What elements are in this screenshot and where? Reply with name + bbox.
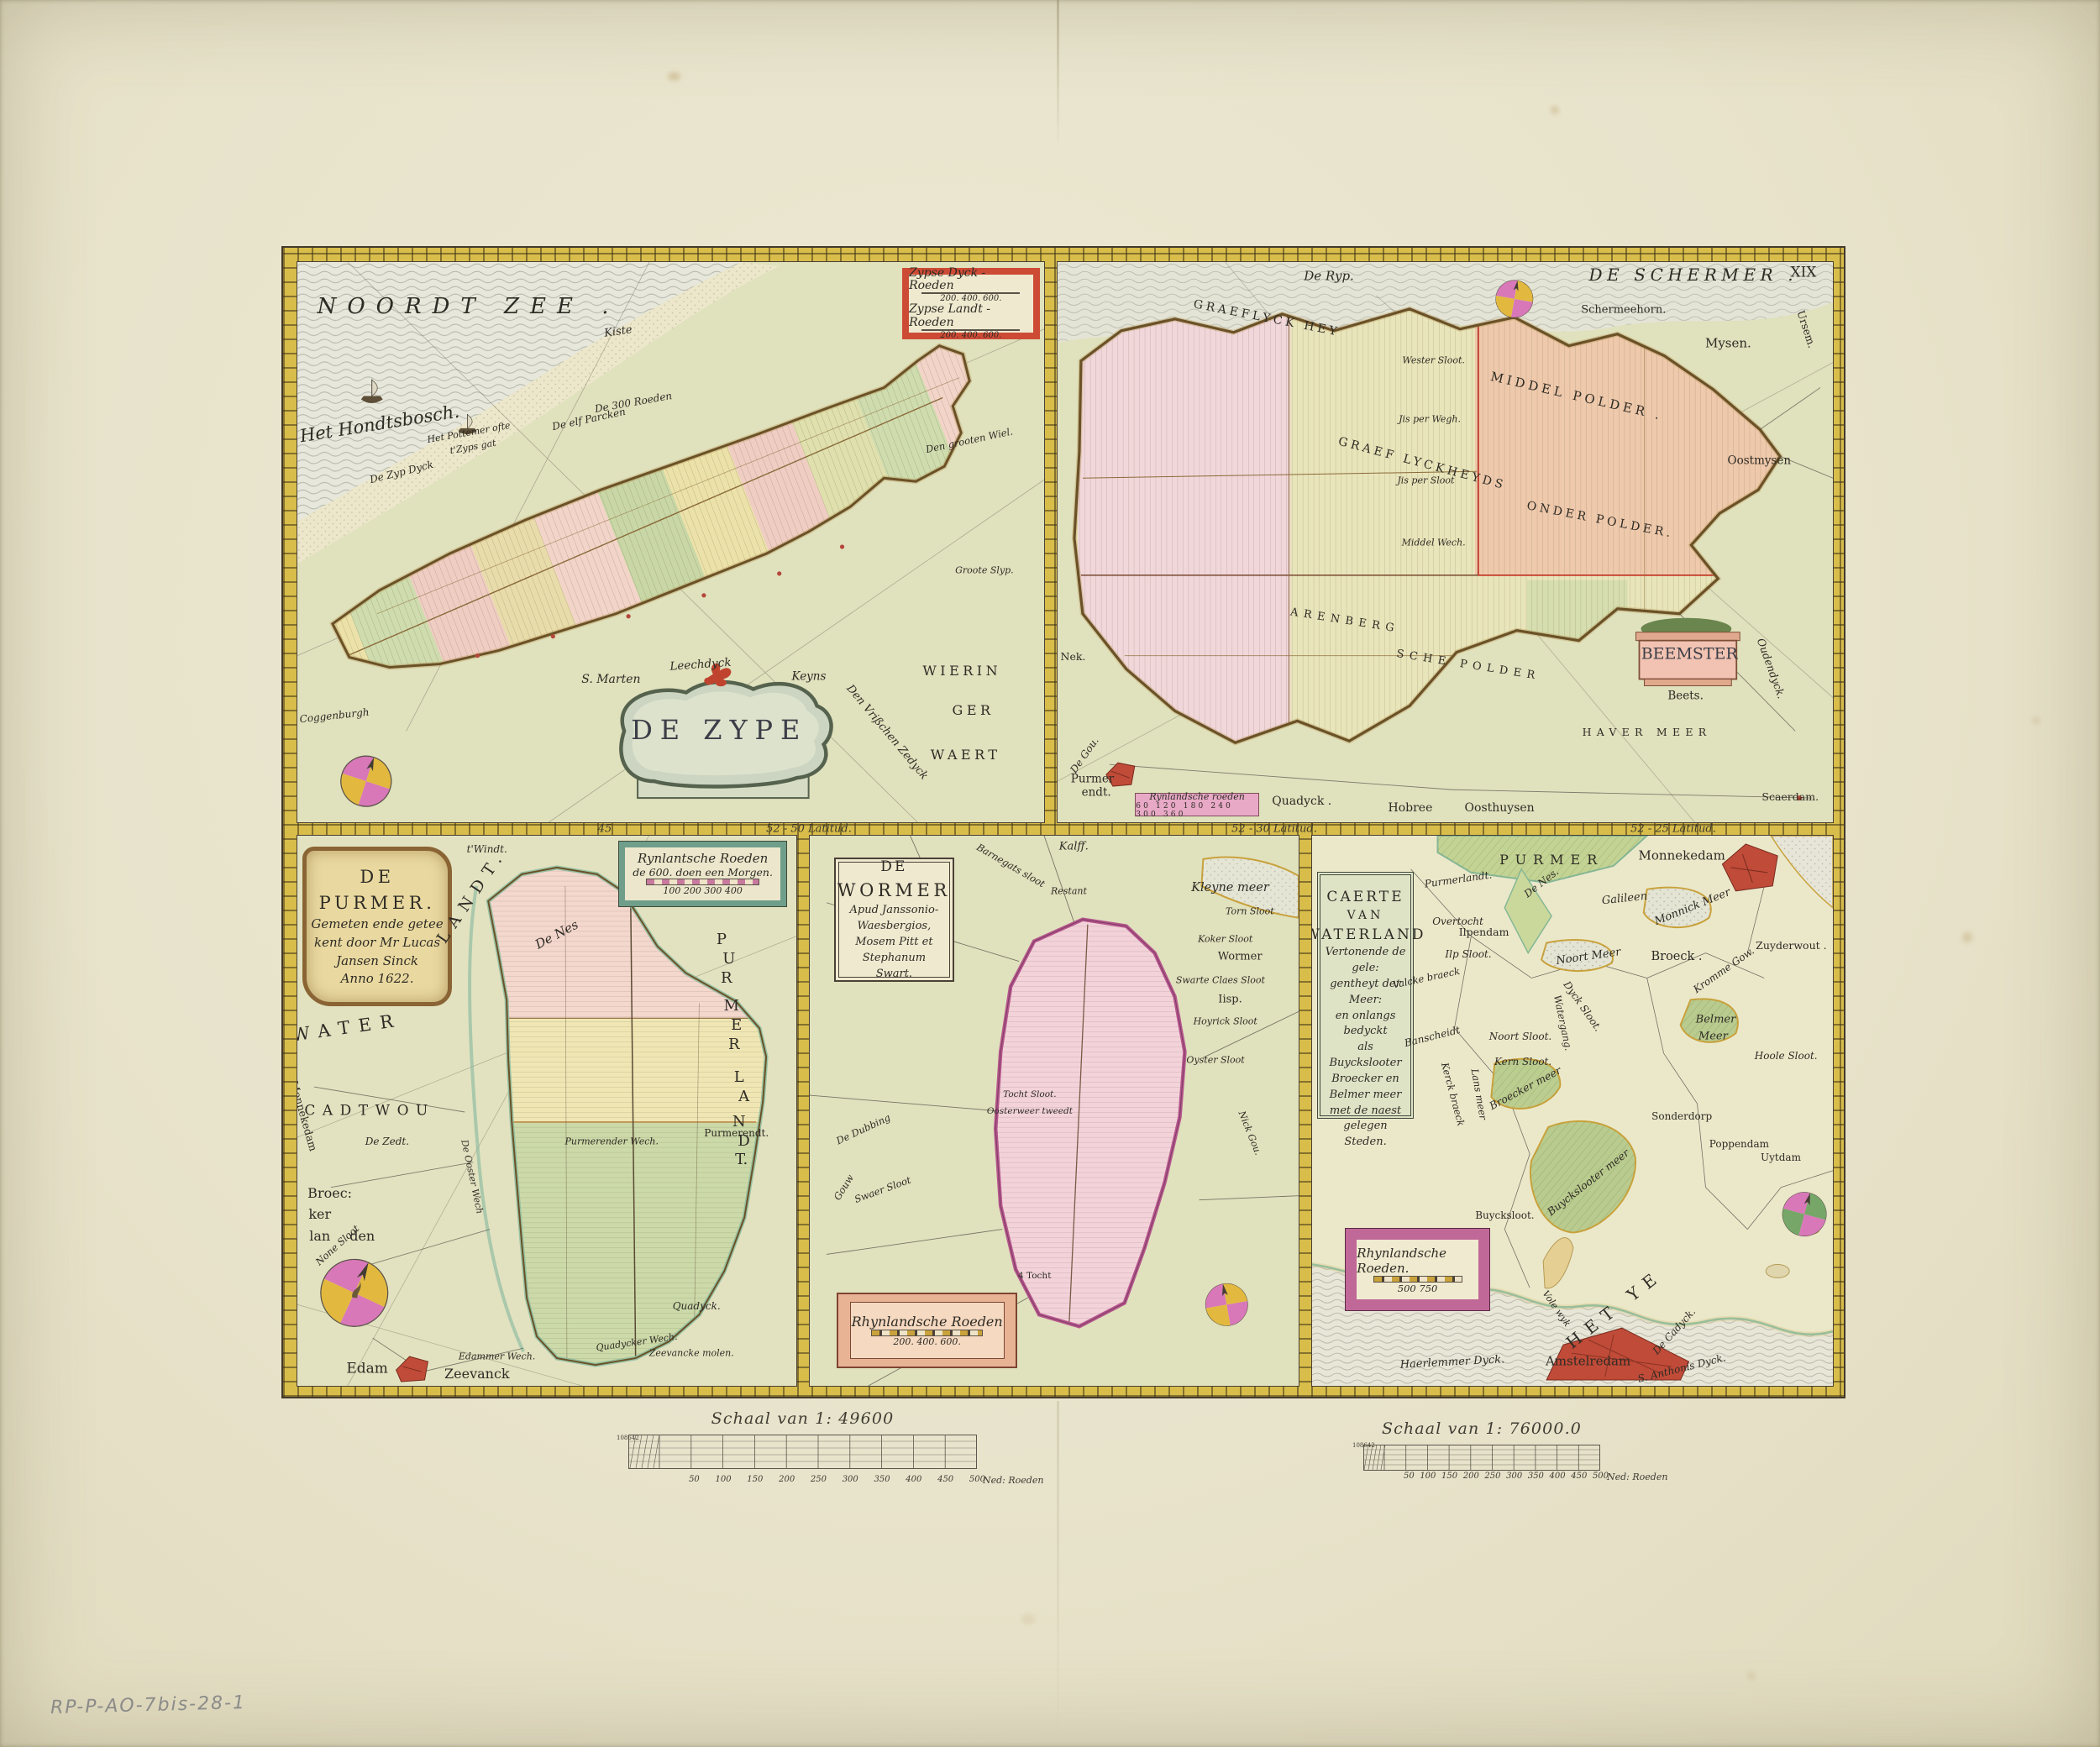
map-label: Kleyne meer <box>1191 882 1269 894</box>
tick-label: 400 <box>890 1475 922 1484</box>
inventory-number: RP-P-AO-7bis-28-1 <box>50 1692 247 1718</box>
tick-label: 10 <box>1352 1442 1360 1449</box>
text-line: Belmer meer <box>1330 1088 1402 1104</box>
panel-de-schermer: Rynlandsche roeden 60 120 180 240 300 36… <box>1057 261 1834 823</box>
scale-line: Zypse Landt - Roeden <box>909 303 1033 329</box>
map-label: Torn Sloot <box>1226 907 1274 916</box>
wormer-polder <box>977 911 1194 1338</box>
map-label: Quadyck . <box>1272 795 1331 807</box>
map-label: Mysen. <box>1705 337 1751 349</box>
map-label: Jis per Wegh. <box>1399 414 1461 423</box>
paper-sheet: Zypse Dyck - Roeden 200. 400. 600. Zypse… <box>0 0 2100 1747</box>
map-label: De Ryp. <box>1304 270 1354 282</box>
map-label: Swarte Claes Sloot <box>1176 976 1265 985</box>
tick-label: 50 <box>668 1475 700 1484</box>
text-line: en onlangs bedyckt <box>1320 1009 1410 1041</box>
map-label: Hoyrick Sloot <box>1194 1017 1257 1026</box>
map-label: U <box>722 952 735 967</box>
tick-label: 2 <box>635 1435 638 1441</box>
map-label: Broec: <box>307 1187 352 1200</box>
map-label: Edam <box>346 1362 388 1377</box>
map-label: Keyns <box>791 671 826 683</box>
scalebar-ruler <box>628 1435 977 1472</box>
tick-label: 300 <box>827 1475 858 1484</box>
map-label: Beets. <box>1667 690 1704 702</box>
map-label: Kalff. <box>1059 842 1089 853</box>
text-line: Gemeten ende getee <box>311 915 443 934</box>
map-label: Quadyck. <box>673 1301 721 1311</box>
map-label: ker <box>308 1208 331 1221</box>
scalebar-title: Schaal van 1: 76000.0 <box>1382 1419 1582 1438</box>
text-line: Swart. <box>876 967 912 983</box>
divider-latitude: 52 - 30 Latitud. <box>1231 823 1317 836</box>
islet <box>1766 1264 1789 1277</box>
tick-label: 10 <box>617 1435 624 1441</box>
map-label: XIX <box>1790 266 1816 281</box>
map-label: Oosthuysen <box>1465 802 1535 814</box>
text-line: WORMER <box>837 878 951 903</box>
text-line: als Buyckslooter <box>1320 1040 1410 1072</box>
map-label: Middel Wech. <box>1402 538 1466 547</box>
map-label: Oostmysen <box>1728 455 1792 467</box>
text-line: DE <box>360 864 394 889</box>
map-label: CADTWOU <box>304 1104 435 1118</box>
scale-line: de 600. doen een Morgen. <box>633 866 773 879</box>
fox-spot <box>1962 932 1972 942</box>
tick-label: 350 <box>1522 1472 1544 1481</box>
wormer-title-box: DEWORMERApud Janssonio-Waesbergios,Mosem… <box>834 858 954 981</box>
map-plate: Zypse Dyck - Roeden 200. 400. 600. Zypse… <box>281 246 1845 1398</box>
vole-wyk-spit <box>1543 1238 1573 1288</box>
compass-rose <box>334 749 397 812</box>
map-label: Kern Sloot. <box>1494 1057 1551 1067</box>
compass-rose <box>1777 1188 1830 1241</box>
tick-label: 250 <box>1479 1472 1501 1481</box>
map-label: Zeevancke molen. <box>649 1348 734 1357</box>
scalebar-ticks: 50100150200250300350400450500 <box>1384 1472 1600 1481</box>
scale-ticks: 200. 400. 600. <box>893 1336 960 1347</box>
fox-spot <box>1747 1671 1756 1680</box>
tick-label: 150 <box>732 1475 764 1484</box>
schermer-scale-box: Rynlandsche roeden 60 120 180 240 300 36… <box>1135 793 1259 816</box>
fox-spot <box>1021 1614 1035 1624</box>
fox-spot <box>668 72 680 81</box>
panel-de-wormer: DEWORMERApud Janssonio-Waesbergios,Mosem… <box>809 835 1299 1387</box>
scalebar-unit: Ned: Roeden <box>1607 1472 1667 1482</box>
tick-label: 450 <box>921 1475 953 1484</box>
map-label: Meer <box>1698 1031 1728 1042</box>
map-label: N <box>732 1115 746 1130</box>
map-label: Monnekedam <box>1639 849 1725 862</box>
tick-label: 100 <box>700 1475 732 1484</box>
text-line: Apud Janssonio-Waesbergios, <box>836 903 953 935</box>
text-line: DE <box>880 857 907 878</box>
scale-ticks: 100 200 300 400 <box>663 885 742 896</box>
tick-label: 100 <box>1415 1472 1436 1481</box>
tick-label: 350 <box>858 1475 890 1484</box>
panel-waterland: CAERTEVANWATERLANDVertonende de gele:gen… <box>1311 835 1834 1387</box>
tick-label: 50 <box>1393 1472 1415 1481</box>
map-label: lan <box>309 1230 330 1243</box>
map-label: Buycksloot. <box>1475 1210 1534 1220</box>
map-label: Hoole Sloot. <box>1755 1051 1818 1061</box>
text-line: Mosem Pitt et Stephanum <box>836 935 953 967</box>
map-label: R <box>728 1037 740 1052</box>
text-line: gelegen Steden. <box>1320 1119 1410 1151</box>
map-label: HAVER MEER <box>1583 727 1712 738</box>
map-label: Belmer <box>1696 1015 1736 1026</box>
map-label: Zeevanck <box>444 1367 510 1381</box>
text-line: Jansen Sinck <box>336 952 418 971</box>
scale-ticks: 60 120 180 240 300 360 <box>1136 802 1258 819</box>
map-label: WIERIN <box>922 664 1001 678</box>
map-label: PURMER <box>1499 853 1604 867</box>
scalebar-subticks: 108642 <box>617 1435 627 1441</box>
map-label: Noort Sloot. <box>1489 1031 1551 1041</box>
panel-de-purmer: DEPURMER.Gemeten ende geteekent door Mr … <box>297 835 797 1387</box>
edam-town <box>396 1356 428 1382</box>
map-label: Iisp. <box>1218 994 1242 1005</box>
tick-label: 250 <box>795 1475 827 1484</box>
map-label: T. <box>735 1152 748 1167</box>
map-label: DE SCHERMER . <box>1588 266 1798 283</box>
scalebar-right: Schaal van 1: 76000.0 108642 50100150200… <box>1363 1419 1600 1487</box>
scale-ticks: 200. 400. 600. <box>940 331 1001 340</box>
map-label: Jis per Sloot <box>1397 476 1454 485</box>
map-label: Edammer Wech. <box>459 1351 535 1361</box>
map-label: Restant <box>1051 886 1087 895</box>
map-label: Ilpendam <box>1459 926 1509 937</box>
text-line: met de naest <box>1330 1104 1401 1120</box>
map-label: L <box>734 1070 744 1085</box>
fox-spot <box>2033 717 2040 724</box>
divider-latitude: 52 - 25 Latitud. <box>1630 823 1716 836</box>
map-label: Oyster Sloot <box>1186 1056 1244 1065</box>
map-label: Amstelredam <box>1546 1355 1630 1367</box>
map-label: Oosterweer tweedt <box>987 1106 1073 1115</box>
text-line: kent door Mr Lucas <box>314 934 440 952</box>
map-label: Groote Slyp. <box>955 565 1014 574</box>
scalebar-ruler <box>1363 1445 1600 1473</box>
map-label: Uytdam <box>1761 1152 1801 1162</box>
tick-label: 300 <box>1501 1472 1523 1481</box>
map-label: Zuyderwout . <box>1756 941 1826 952</box>
text-line: CAERTE <box>1326 887 1404 908</box>
fold-crease <box>1057 0 1059 151</box>
scalebar-ticks: 50100150200250300350400450500 <box>659 1475 977 1484</box>
tick-label: 450 <box>1566 1472 1588 1481</box>
map-label: E <box>731 1018 742 1033</box>
map-label: Nek. <box>1061 652 1086 663</box>
scale-line: Rhynlandsche Roeden <box>852 1314 1003 1330</box>
scalebar-subticks: 108642 <box>1352 1442 1362 1449</box>
scale-ruler <box>871 1330 983 1336</box>
panel-de-zype: Zypse Dyck - Roeden 200. 400. 600. Zypse… <box>297 261 1045 823</box>
tick-label: 200 <box>763 1475 795 1484</box>
scale-ruler <box>1373 1276 1462 1283</box>
map-label: endt. <box>1082 788 1111 800</box>
map-label: Wormer <box>1218 952 1263 963</box>
map-label: GER <box>953 704 995 717</box>
map-label: Schermeehorn. <box>1581 304 1666 315</box>
tick-label: 500 <box>953 1475 985 1484</box>
map-label: Sonderdorp <box>1651 1111 1712 1121</box>
scalebar-left: Schaal van 1: 49600 108642 5010015020025… <box>628 1409 977 1485</box>
purmer-scale-box: Rynlantsche Roeden de 600. doen een Morg… <box>619 842 786 906</box>
map-label: BEEMSTER <box>1641 646 1738 662</box>
map-label: DE ZYPE <box>631 716 807 743</box>
scalebar-title: Schaal van 1: 49600 <box>711 1409 895 1428</box>
scale-ruler <box>646 879 759 885</box>
divider-latitude: 52 - 50 Latitud. <box>766 823 852 836</box>
map-label: Scaerdam. <box>1761 792 1819 803</box>
map-label: Poppendam <box>1709 1139 1769 1149</box>
scalebar-unit: Ned: Roeden <box>983 1475 1043 1486</box>
text-line: VAN <box>1347 907 1383 924</box>
map-label: WAERT <box>931 748 1001 762</box>
map-label: t'Windt. <box>467 844 507 854</box>
waterland-title-block: CAERTEVANWATERLANDVertonende de gele:gen… <box>1317 872 1414 1120</box>
map-label: A <box>738 1089 749 1104</box>
wormer-scale-pedestal: Rhynlandsche Roeden 200. 400. 600. <box>837 1293 1017 1368</box>
map-label: Koker Sloot <box>1198 935 1252 944</box>
scale-line: Zypse Dyck - Roeden <box>909 267 1033 293</box>
text-line: Anno 1622. <box>341 970 414 989</box>
map-label: S. Marten <box>581 674 640 685</box>
map-label: D <box>738 1134 749 1149</box>
map-label: Wester Sloot. <box>1402 355 1464 365</box>
map-label: 4 Tocht <box>1018 1272 1051 1281</box>
text-line: Vertonende de gele: <box>1320 945 1410 977</box>
map-label: Tocht Sloot. <box>1003 1090 1056 1099</box>
text-line: PURMER. <box>319 890 436 915</box>
map-label: Hobree <box>1389 802 1433 814</box>
map-label: DE NOORDT ZEE . <box>297 296 620 317</box>
map-label: Purmerender Wech. <box>564 1136 659 1146</box>
scale-line: Rhynlandsche Roeden. <box>1357 1246 1478 1276</box>
map-label: P <box>717 932 727 947</box>
compass-rose <box>1202 1280 1251 1329</box>
tick-label: 500 <box>1587 1472 1609 1481</box>
monnekedam-town <box>1722 844 1777 891</box>
tick-label: 400 <box>1544 1472 1566 1481</box>
text-line: Broecker en <box>1331 1072 1399 1088</box>
tick-label: 150 <box>1436 1472 1457 1481</box>
purmer-cartouche: DEPURMER.Gemeten ende geteekent door Mr … <box>302 847 452 1006</box>
map-label: De Zedt. <box>365 1136 409 1146</box>
scale-line: Rynlantsche Roeden <box>638 851 768 866</box>
map-label: R <box>721 971 732 986</box>
fox-spot <box>1551 106 1559 114</box>
scale-line: Rynlandsche roeden <box>1149 791 1245 802</box>
map-label: Broeck . <box>1651 951 1702 963</box>
tick-label: 2 <box>1371 1442 1374 1449</box>
divider-longitude: 45 <box>598 823 612 836</box>
scale-ticks: 500 750 <box>1398 1283 1438 1294</box>
map-label: M <box>724 999 739 1014</box>
map-label: Ilp Sloot. <box>1445 949 1491 959</box>
waterland-scale-box: Rhynlandsche Roeden. 500 750 <box>1346 1229 1489 1310</box>
tick-label: 200 <box>1457 1472 1479 1481</box>
text-line: WATERLAND <box>1311 925 1426 946</box>
zype-scale-box: Zypse Dyck - Roeden 200. 400. 600. Zypse… <box>902 268 1040 339</box>
fold-crease <box>1057 1401 1059 1747</box>
